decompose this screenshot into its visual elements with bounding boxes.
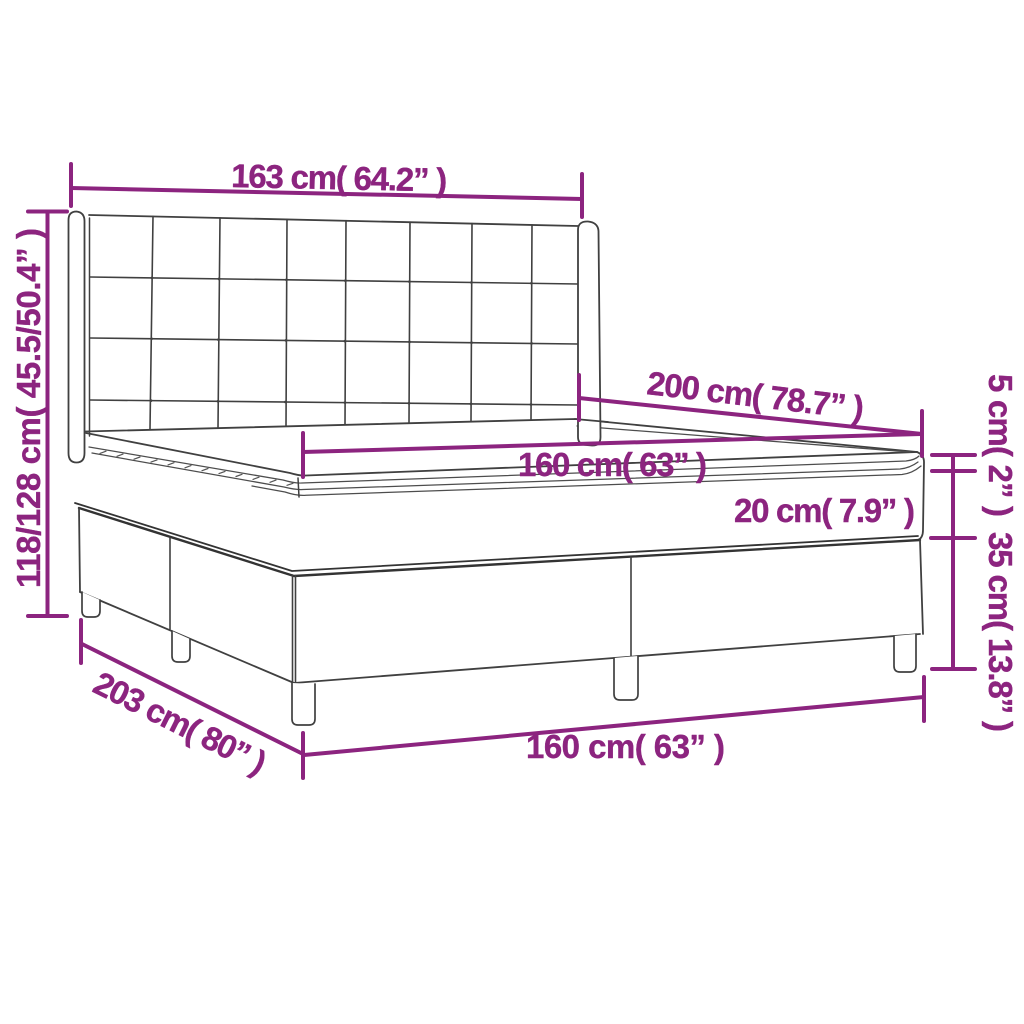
svg-text:5 cm( 2” ): 5 cm( 2” ) — [982, 374, 1019, 517]
svg-text:160 cm( 63” ): 160 cm( 63” ) — [526, 728, 725, 765]
svg-text:35 cm( 13.8” ): 35 cm( 13.8” ) — [982, 532, 1019, 732]
svg-text:160 cm( 63” ): 160 cm( 63” ) — [518, 446, 707, 483]
svg-text:20 cm( 7.9” ): 20 cm( 7.9” ) — [734, 492, 915, 529]
svg-text:163 cm( 64.2” ): 163 cm( 64.2” ) — [231, 157, 448, 199]
svg-text:118/128 cm( 45.5/50.4” ): 118/128 cm( 45.5/50.4” ) — [10, 228, 47, 588]
